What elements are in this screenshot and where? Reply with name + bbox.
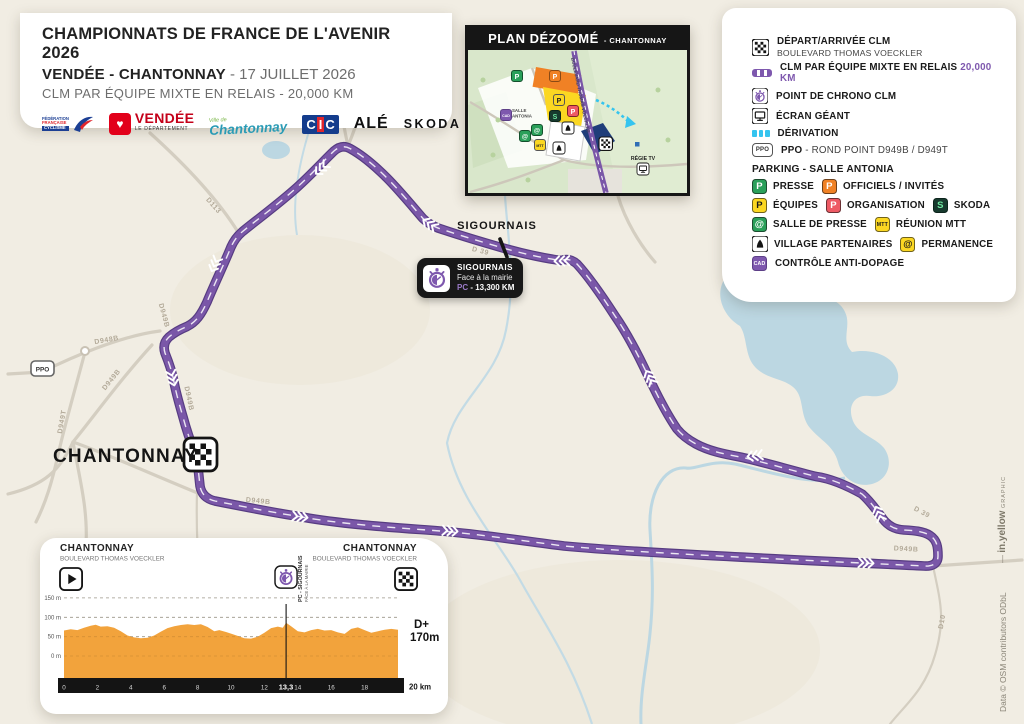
legend-permanence-label: PERMANENCE (921, 239, 993, 250)
race-map-poster: D948BD949BD949TD113D949BD949BD949BD 39D … (0, 0, 1024, 724)
skoda-logo: SKODA (404, 117, 462, 131)
profile-start-icon (60, 568, 82, 590)
inset-salle-label1: SALLE (512, 108, 526, 113)
callout-location: Face à la mairie (457, 273, 514, 283)
route-swatch-icon (752, 69, 772, 77)
pc-km-label: 13,3 (279, 683, 293, 692)
total-distance-label: 20 km (409, 683, 431, 692)
ale-logo: ALÉ (354, 115, 389, 133)
inset-start-finish-flag (599, 137, 612, 150)
legend-chrono: POINT DE CHRONO CLM (752, 88, 998, 104)
data-credit: Data © OSM contributors ODbL (998, 592, 1008, 712)
parking-organisation-icon: P (826, 198, 841, 213)
svg-text:P: P (571, 109, 576, 116)
svg-text:S: S (553, 114, 558, 121)
inset-map: PLAN DÉZOOMÉ - CHANTONNAY (465, 25, 690, 196)
svg-text:P: P (515, 74, 520, 81)
dplus-value: 170m (410, 632, 439, 644)
parking-presse-icon: P (752, 179, 767, 194)
callout-pc: PC (457, 283, 468, 292)
legend-cad-label: CONTRÔLE ANTI-DOPAGE (775, 258, 904, 269)
svg-text:MTT: MTT (536, 144, 544, 148)
controle-anti-dopage-icon: CAD (752, 256, 767, 271)
inset-building (568, 169, 622, 193)
derivation-swatch-icon (752, 130, 770, 137)
x-axis-label: 6 (162, 685, 166, 692)
elevation-profile-chart: 150 m100 m50 m0 m 024681012141618 13,3 2… (40, 538, 448, 714)
permanence-icon: @ (900, 237, 915, 252)
svg-text:P: P (553, 74, 558, 81)
ffc-logo: FÉDÉRATION FRANÇAISE CYCLISME (42, 114, 94, 134)
legend-cad-row: CAD CONTRÔLE ANTI-DOPAGE (752, 256, 998, 271)
legend-clm-label: CLM PAR ÉQUIPE MIXTE EN RELAIS (780, 62, 957, 73)
vendee-logo-text: VENDÉE (135, 113, 194, 124)
callout-distance: - 13,300 KM (468, 283, 514, 292)
graphic-credit: — in.yellow GRAPHIC (997, 476, 1008, 563)
inset-blue-marker (635, 142, 640, 147)
elevation-profile-card: 150 m100 m50 m0 m 024681012141618 13,3 2… (40, 538, 448, 714)
parking-equipes-icon: P (752, 198, 767, 213)
giant-screen-icon (752, 108, 768, 124)
legend-ecran: ÉCRAN GÉANT (752, 108, 998, 124)
chantonnay-logo-text: Chantonnay (209, 122, 287, 135)
legend-equipes-label: ÉQUIPES (773, 200, 818, 211)
cic-letter: C (325, 117, 334, 132)
legend-village-label: VILLAGE PARTENAIRES (774, 239, 892, 250)
ffc-bird-icon (72, 114, 94, 134)
village-icon (752, 236, 768, 252)
callout-title: SIGOURNAIS (457, 263, 514, 273)
legend-chrono-label: POINT DE CHRONO CLM (776, 91, 896, 102)
x-axis-label: 8 (196, 685, 200, 692)
legend-clm: CLM PAR ÉQUIPE MIXTE EN RELAIS 20,000 KM (752, 62, 998, 84)
legend-derivation-label: DÉRIVATION (778, 128, 839, 139)
parking-officiels-icon: P (822, 179, 837, 194)
vendee-logo-subtext: LE DÉPARTEMENT (135, 124, 194, 135)
ppo-map-icon: PPO (31, 361, 54, 376)
svg-text:@: @ (534, 128, 540, 135)
credit-dash: — (998, 553, 1007, 563)
legend-village-row: VILLAGE PARTENAIRES @ PERMANENCE (752, 236, 998, 252)
parking-skoda-icon: S (933, 198, 948, 213)
dplus-label: D+ (414, 619, 429, 631)
legend-depart-label: DÉPART/ARRIVÉE CLM (777, 36, 923, 47)
stopwatch-icon (423, 265, 450, 292)
legend-panel: DÉPART/ARRIVÉE CLM BOULEVARD THOMAS VOEC… (722, 8, 1016, 302)
inset-regie-label: RÉGIE TV (631, 154, 656, 162)
event-title: CHAMPIONNATS DE FRANCE DE L'AVENIR 2026 (42, 25, 432, 63)
legend-depart: DÉPART/ARRIVÉE CLM BOULEVARD THOMAS VOEC… (752, 36, 998, 58)
inset-header: PLAN DÉZOOMÉ - CHANTONNAY (468, 28, 687, 50)
x-axis-label: 2 (96, 685, 100, 692)
profile-end-name: CHANTONNAY (343, 543, 417, 554)
legend-depart-sublabel: BOULEVARD THOMAS VOECKLER (777, 48, 923, 58)
legend-organisation-label: ORGANISATION (847, 200, 925, 211)
svg-text:CAD: CAD (502, 114, 510, 118)
legend-parking-row1: P PRESSE P OFFICIELS / INVITÉS (752, 179, 998, 194)
reunion-mtt-icon: MTT (875, 217, 890, 232)
legend-mtt-label: RÉUNION MTT (896, 219, 966, 230)
inset-title: PLAN DÉZOOMÉ (488, 28, 599, 50)
x-axis-label: 16 (328, 685, 336, 692)
sponsor-logo-row: FÉDÉRATION FRANÇAISE CYCLISME ♥ VENDÉE L… (42, 110, 432, 138)
town-label-chantonnay: CHANTONNAY (53, 446, 198, 467)
legend-press-row: @ SALLE DE PRESSE MTT RÉUNION MTT (752, 217, 998, 232)
svg-text:P: P (557, 98, 562, 105)
event-discipline: CLM PAR ÉQUIPE MIXTE EN RELAIS - 20,000 … (42, 86, 432, 101)
profile-finish-icon (395, 568, 417, 590)
checkered-flag-icon (752, 39, 769, 56)
legend-parking-row2: P ÉQUIPES P ORGANISATION S SKODA (752, 198, 998, 213)
event-location: VENDÉE - CHANTONNAY (42, 66, 226, 83)
legend-ppo-detail: - ROND POINT D949B / D949T (802, 145, 948, 156)
vendee-heart-icon: ♥ (109, 113, 131, 135)
legend-ecran-label: ÉCRAN GÉANT (776, 111, 850, 122)
profile-y-labels: 150 m100 m50 m0 m (44, 596, 61, 660)
legend-ppo-label: PPO (781, 145, 802, 156)
inset-map-canvas: BOULEVARD THOMAS VOECKLER SALLE ANTONIA … (468, 50, 687, 193)
x-axis-label: 10 (227, 685, 235, 692)
inset-salle-label2: ANTONIA (512, 114, 533, 119)
roundabout (81, 347, 89, 355)
profile-pc-text2: FACE À LA MAIRIE (304, 564, 309, 602)
town-label-sigournais: SIGOURNAIS (457, 220, 537, 232)
elevation-area (64, 623, 398, 678)
cic-logo: CIC (302, 115, 338, 134)
inset-village-icon (562, 122, 574, 134)
svg-text:@: @ (522, 134, 528, 141)
y-axis-label: 0 m (51, 654, 61, 660)
y-axis-label: 100 m (44, 615, 61, 621)
inset-screen-icon (637, 163, 649, 175)
ppo-icon: PPO (752, 143, 773, 157)
y-axis-label: 150 m (44, 596, 61, 602)
pond (262, 141, 290, 159)
x-axis-label: 12 (261, 685, 269, 692)
title-card: CHAMPIONNATS DE FRANCE DE L'AVENIR 2026 … (20, 13, 452, 128)
credit-studio-name: in.yellow (997, 511, 1008, 553)
x-axis-label: 18 (361, 685, 369, 692)
salle-presse-icon: @ (752, 217, 767, 232)
event-subtitle: VENDÉE - CHANTONNAY - 17 JUILLET 2026 (42, 66, 432, 83)
x-axis-label: 14 (294, 685, 302, 692)
cic-letter: I (317, 117, 325, 132)
legend-derivation: DÉRIVATION (752, 128, 998, 139)
profile-start-sub: BOULEVARD THOMAS VOECKLER (60, 556, 165, 563)
stopwatch-icon (752, 88, 768, 104)
legend-skoda-label: SKODA (954, 200, 990, 211)
svg-text:PPO: PPO (36, 367, 50, 374)
cic-letter: C (306, 117, 315, 132)
credit-studio-suffix: GRAPHIC (1001, 476, 1007, 511)
inset-subtitle: - CHANTONNAY (604, 36, 667, 45)
legend-officiels-label: OFFICIELS / INVITÉS (843, 181, 944, 192)
event-date: - 17 JUILLET 2026 (226, 66, 356, 83)
legend-salle-presse-label: SALLE DE PRESSE (773, 219, 867, 230)
sigournais-callout: SIGOURNAIS Face à la mairie PC - 13,300 … (417, 258, 523, 298)
profile-end-sub: BOULEVARD THOMAS VOECKLER (312, 556, 417, 563)
road-label: D949B (894, 545, 919, 553)
x-axis-label: 0 (62, 685, 66, 692)
x-axis-label: 4 (129, 685, 133, 692)
vendee-logo: ♥ VENDÉE LE DÉPARTEMENT (109, 113, 194, 135)
profile-chrono-icon (275, 566, 297, 588)
ffc-logo-text3: CYCLISME (42, 126, 69, 132)
legend-presse-label: PRESSE (773, 181, 814, 192)
chantonnay-logo: Ville de Chantonnay (209, 113, 288, 135)
legend-parking-header: PARKING - SALLE ANTONIA (752, 164, 998, 175)
y-axis-label: 50 m (48, 635, 61, 641)
profile-start-name: CHANTONNAY (60, 543, 134, 554)
legend-ppo: PPO PPO - ROND POINT D949B / D949T (752, 143, 998, 157)
inset-village-icon (553, 142, 565, 154)
